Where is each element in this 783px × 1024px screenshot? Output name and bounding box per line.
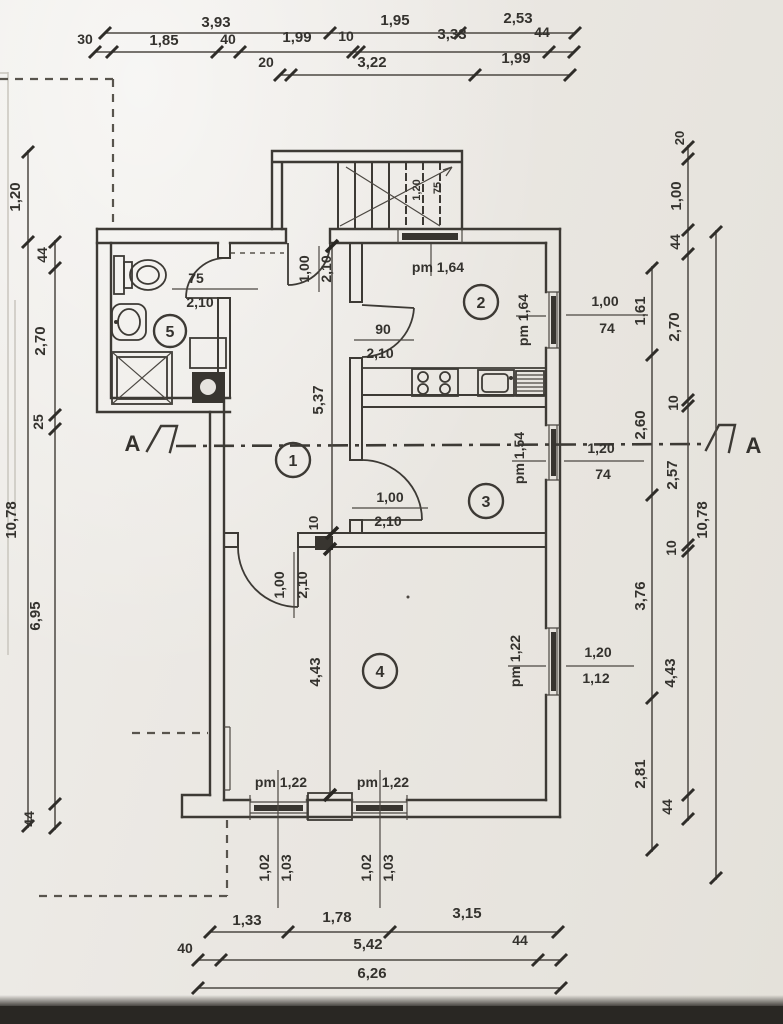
dim-label: 20	[672, 131, 687, 145]
parapet-label: pm 1,22	[255, 774, 307, 790]
parapet-label: pm 1,22	[507, 635, 523, 687]
parapet-label: pm 1,64	[412, 259, 464, 275]
dim-label: 5,42	[353, 936, 382, 953]
toilet	[114, 256, 166, 294]
dim-label: 1,95	[380, 12, 409, 29]
dim-label: 44	[21, 811, 37, 827]
bathroom-sink	[112, 304, 146, 340]
room-5-badge: 5	[154, 315, 186, 347]
dim-label: 1,78	[322, 909, 351, 926]
paper-ghost-lines	[0, 72, 15, 655]
door-size: 2,10	[294, 571, 310, 598]
bath-door-label: 75 2,10	[172, 270, 258, 310]
parapet-label: pm 1,54	[511, 432, 527, 484]
room-1-badge: 1	[276, 443, 310, 477]
dim-label: 40	[220, 31, 236, 47]
bathroom-cabinet	[190, 338, 226, 368]
window-labels: pm 1,64 pm 1,64 1,00 74 pm 1,54 1,20 74 …	[255, 259, 648, 908]
dim-label: 3,33	[437, 26, 466, 43]
dish-drainer	[516, 371, 544, 396]
window-size: 1,02	[256, 854, 272, 881]
dim-label: 1,20	[7, 182, 24, 211]
dim-label: 2,70	[666, 312, 683, 341]
room4-door-label: 1,00 2,10	[271, 552, 310, 618]
dimension-chain-right-inner: 1,61 2,60 3,76 2,81	[632, 262, 658, 856]
door-size: 1,00	[376, 489, 403, 505]
dim-label: 40	[177, 940, 193, 956]
floor-plan-drawing: 1,20 75	[0, 0, 783, 1024]
window-size: 74	[599, 320, 615, 336]
dim-label: 1,99	[501, 50, 530, 67]
window-size: 1,03	[278, 854, 294, 881]
dimension-chain-right-outer: 10,78	[694, 226, 722, 884]
window-size: 1,20	[587, 440, 614, 456]
dim-label: 20	[258, 54, 274, 70]
dim-label: 10	[665, 395, 681, 411]
section-marker-right	[706, 425, 735, 452]
stair-dim-label: 75	[432, 182, 444, 194]
dim-label: 2,53	[503, 10, 532, 27]
dim-label: 1,33	[232, 912, 261, 929]
dim-label: 44	[34, 247, 50, 263]
dim-label: 25	[30, 414, 46, 430]
stove	[412, 369, 458, 396]
dimension-chain-bottom-1: 1,33 1,78 3,15	[204, 905, 564, 938]
dim-label: 10,78	[694, 501, 711, 539]
section-marker-left	[147, 426, 177, 452]
room-number: 2	[477, 295, 486, 312]
room-number: 1	[289, 453, 298, 470]
dimension-chain-left-inner: 44 2,70 25 6,95 44	[21, 236, 61, 834]
dim-label: 1,85	[149, 32, 178, 49]
dim-label: 10	[306, 516, 321, 530]
door-size: 2,10	[318, 255, 334, 282]
room-4-badge: 4	[363, 654, 397, 688]
washing-machine	[192, 372, 225, 403]
dim-label: 5,37	[310, 385, 327, 414]
dim-label: 3,93	[201, 14, 230, 31]
window-size: 74	[595, 466, 611, 482]
dim-label: 10	[663, 540, 679, 556]
dim-label: 2,60	[632, 410, 649, 439]
windows	[250, 229, 560, 820]
window-size: 1,00	[591, 293, 618, 309]
photo-edge-band	[0, 1006, 783, 1024]
dim-label: 1,00	[668, 181, 685, 210]
dimension-chain-right-middle: 20 1,00 44 2,70 10 2,57 10 4,43 44	[659, 131, 694, 825]
entry-stairs: 1,20 75	[272, 151, 462, 229]
dim-label: 4,43	[307, 657, 324, 686]
dim-label: 44	[659, 799, 675, 815]
dim-label: 44	[667, 234, 683, 250]
dim-label: 44	[534, 24, 550, 40]
window-size: 1,03	[380, 854, 396, 881]
dim-label: 10,78	[3, 501, 20, 539]
floor-plan-scan: 1,20 75	[0, 0, 783, 1024]
dim-label: 2,57	[664, 460, 681, 489]
dim-label: 3,76	[632, 581, 649, 610]
dim-label: 2,70	[32, 326, 49, 355]
room-number: 4	[376, 664, 385, 681]
kitchen-door-label: 90 2,10	[354, 321, 414, 361]
section-label-left: A	[125, 431, 142, 456]
dimension-chain-top-3: 20 3,22 1,99	[258, 50, 576, 81]
dim-label: 6,95	[27, 601, 44, 630]
room-2-badge: 2	[464, 285, 498, 319]
dim-label: 6,26	[357, 965, 386, 982]
dimension-chain-bottom-2: 40 5,42 44	[177, 932, 567, 966]
room-3-badge: 3	[469, 484, 503, 518]
door-size: 2,10	[186, 294, 213, 310]
window-size: 1,12	[582, 670, 609, 686]
dim-label: 1,61	[632, 296, 649, 325]
dim-label: 10	[338, 28, 354, 44]
parapet-label: pm 1,64	[515, 294, 531, 346]
doors	[186, 243, 422, 607]
stair-dim-label: 1,20	[411, 179, 423, 200]
window-size: 1,20	[584, 644, 611, 660]
door-size: 2,10	[366, 345, 393, 361]
dim-label: 4,43	[662, 658, 679, 687]
dim-label: 30	[77, 31, 93, 47]
parapet-label: pm 1,22	[357, 774, 409, 790]
dim-label: 44	[512, 932, 528, 948]
dim-label: 3,15	[452, 905, 481, 922]
dimension-chain-bottom-3: 6,26	[192, 965, 567, 994]
door-size: 1,00	[271, 571, 287, 598]
kitchen-sink	[478, 370, 514, 396]
door-size: 2,10	[374, 513, 401, 529]
dim-label: 3,22	[357, 54, 386, 71]
door-size: 1,00	[296, 255, 312, 282]
room-numbers: 1 2 3 4 5	[154, 285, 503, 688]
room-number: 5	[166, 324, 175, 341]
kitchen-counter	[362, 368, 546, 396]
door-size: 75	[188, 270, 204, 286]
paper-speck	[407, 596, 410, 599]
room4-door	[238, 547, 298, 607]
section-line: A A	[125, 425, 763, 458]
dim-label: 2,81	[632, 759, 649, 788]
window-size: 1,02	[358, 854, 374, 881]
shower	[112, 352, 172, 404]
section-label-right: A	[746, 433, 763, 458]
interior-dimensions: 5,37 4,43 10	[306, 240, 338, 801]
door-size: 90	[375, 321, 391, 337]
dashed-overhang-outline	[0, 79, 284, 896]
dim-label: 1,99	[282, 29, 311, 46]
room-number: 3	[482, 494, 491, 511]
